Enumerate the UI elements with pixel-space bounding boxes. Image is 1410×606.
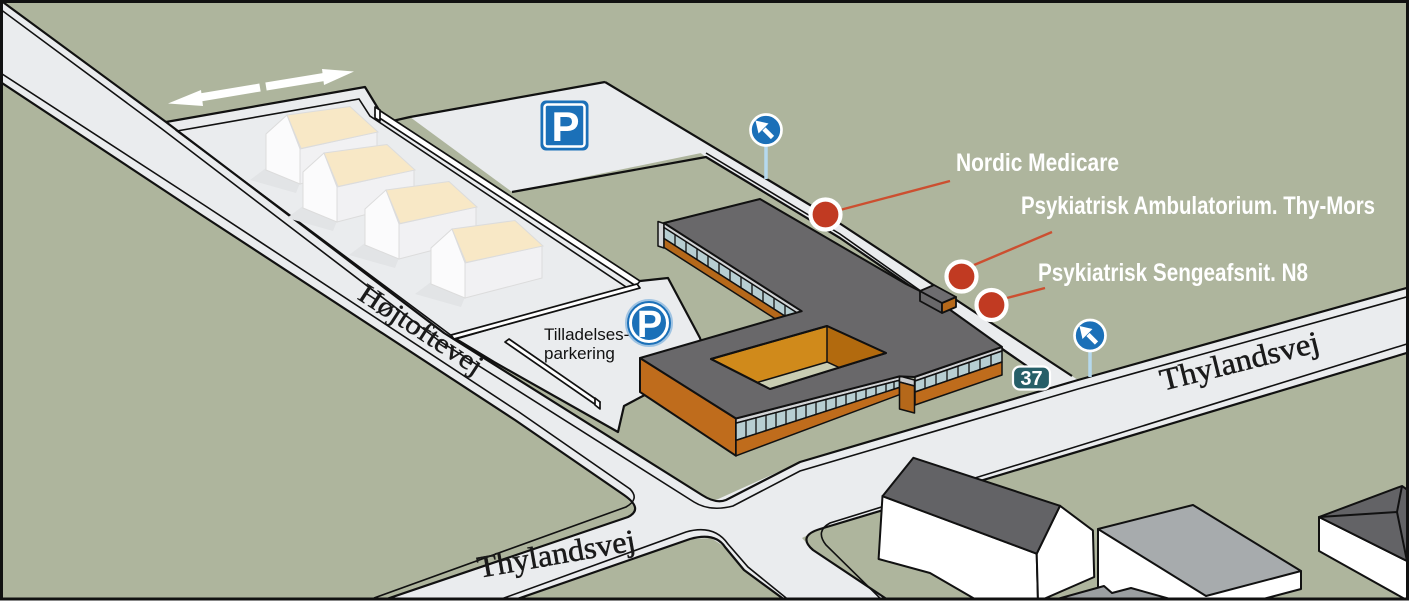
svg-text:Psykiatrisk Ambulatorium. Thy-: Psykiatrisk Ambulatorium. Thy-Mors xyxy=(1021,192,1375,220)
svg-text:Nordic Medicare: Nordic Medicare xyxy=(956,149,1119,177)
svg-text:parkering: parkering xyxy=(544,344,615,363)
svg-text:P: P xyxy=(637,304,662,346)
svg-text:Tilladelses-: Tilladelses- xyxy=(544,325,629,344)
svg-text:P: P xyxy=(551,103,579,150)
svg-text:37: 37 xyxy=(1020,368,1042,390)
svg-text:Psykiatrisk Sengeafsnit. N8: Psykiatrisk Sengeafsnit. N8 xyxy=(1038,259,1308,287)
